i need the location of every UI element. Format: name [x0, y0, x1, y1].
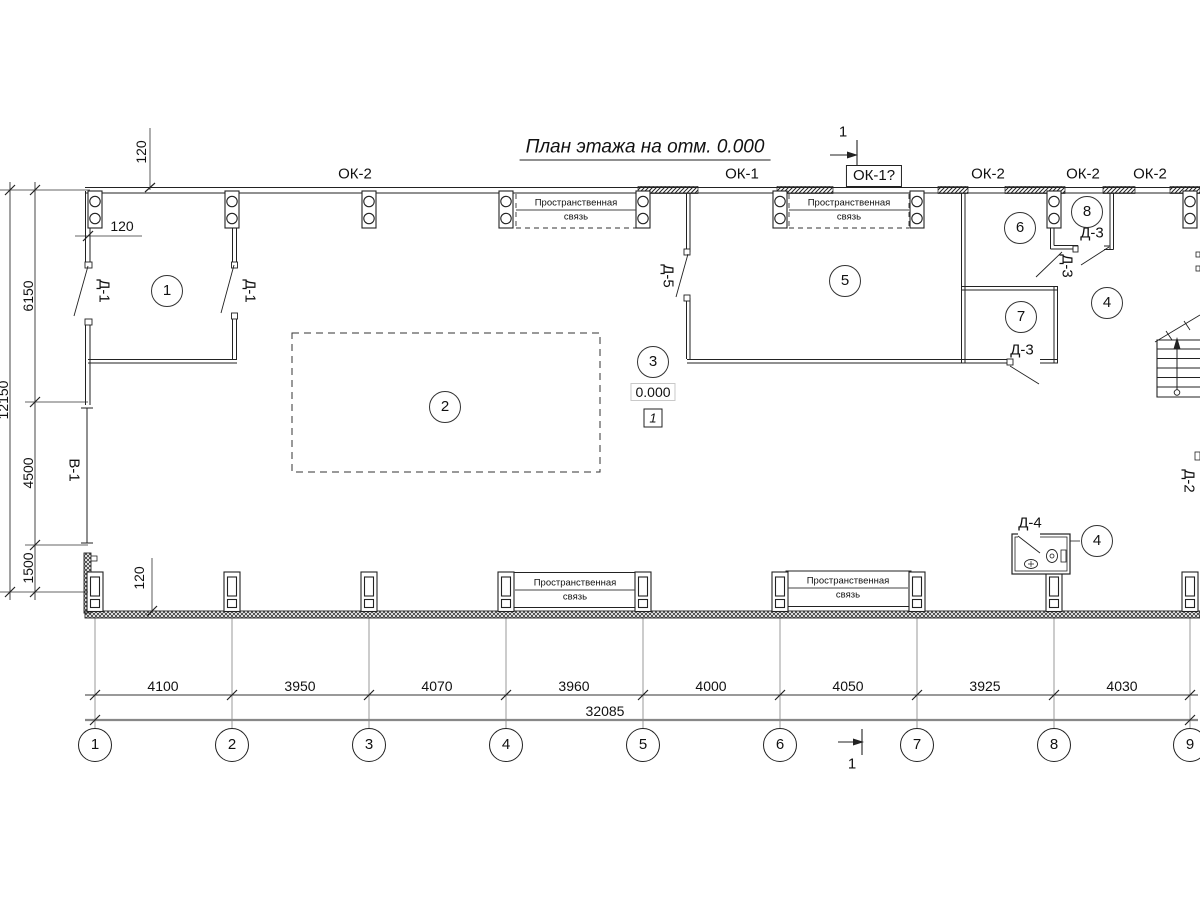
window-mark-ok2-b: ОК-2 [971, 167, 1005, 182]
door-mark-d3-low: Д-3 [1010, 343, 1034, 358]
dim-seg-2: 3950 [284, 679, 315, 693]
opening-b1-marker [81, 408, 93, 543]
stairs [1155, 315, 1200, 397]
elevation-flag: 1 [644, 409, 663, 428]
left-dimensions [0, 182, 90, 600]
room-number-6: 6 [1004, 212, 1036, 244]
dim-seg-3: 4070 [421, 679, 452, 693]
drawing-title: План этажа на отм. 0.000 [520, 138, 771, 161]
grid-axis-7: 7 [900, 728, 934, 762]
section-cut-marks [830, 140, 864, 755]
dim-seg-7: 3925 [969, 679, 1000, 693]
offset-120-top: 120 [134, 140, 148, 163]
dim-seg-8: 4030 [1106, 679, 1137, 693]
opening-mark-b1: В-1 [67, 458, 82, 481]
spatial-tie-boxes [513, 194, 911, 608]
section-cut-label-bottom: 1 [848, 757, 856, 772]
spatial-tie-bottom-right: Пространственная связь [788, 576, 908, 601]
door-mark-d1-right: Д-1 [243, 279, 258, 303]
door-mark-d1-left: Д-1 [97, 279, 112, 303]
dim-total-left: 12150 [0, 381, 10, 420]
grid-axis-2: 2 [215, 728, 249, 762]
window-mark-ok2-d: ОК-2 [1133, 167, 1167, 182]
window-mark-ok2-c: ОК-2 [1066, 167, 1100, 182]
door-mark-d2: Д-2 [1182, 469, 1197, 493]
dim-left-3: 1500 [21, 552, 35, 583]
room-number-5: 5 [829, 265, 861, 297]
spatial-tie-top-right: Пространственная связь [789, 198, 909, 223]
room-number-1: 1 [151, 275, 183, 307]
door-mark-d3-mid: Д-3 [1060, 254, 1075, 278]
dim-left-1: 6150 [21, 280, 35, 311]
floor-plan-linework [0, 0, 1200, 900]
dim-seg-4: 3960 [558, 679, 589, 693]
elevation-value: 0.000 [630, 383, 675, 401]
room-number-8: 8 [1071, 196, 1103, 228]
offset-120-left: 120 [110, 219, 133, 233]
window-mark-ok1: ОК-1 [725, 167, 759, 182]
door-mark-d5: Д-5 [661, 264, 676, 288]
grid-axis-5: 5 [626, 728, 660, 762]
room-number-2: 2 [429, 391, 461, 423]
window-mark-ok2-a: ОК-2 [338, 167, 372, 182]
grid-axis-3: 3 [352, 728, 386, 762]
door-mark-d4: Д-4 [1018, 516, 1042, 531]
section-cut-label-top: 1 [839, 125, 847, 140]
grid-axis-6: 6 [763, 728, 797, 762]
floor-plan-sheet: План этажа на отм. 0.000 1 1 ОК-2 ОК-1 О… [0, 0, 1200, 900]
window-mark-ok1-query: ОК-1? [846, 165, 902, 187]
bottom-dimensions [85, 690, 1198, 725]
dim-seg-1: 4100 [147, 679, 178, 693]
dim-total-bottom: 32085 [586, 704, 625, 718]
grid-axis-8: 8 [1037, 728, 1071, 762]
grid-axis-1: 1 [78, 728, 112, 762]
bathroom [1012, 533, 1080, 575]
spatial-tie-bottom-left: Пространственная связь [515, 578, 635, 603]
offset-120-bottom: 120 [132, 566, 146, 589]
room-number-3: 3 [637, 346, 669, 378]
grid-axis-9: 9 [1173, 728, 1200, 762]
spatial-tie-top-left: Пространственная связь [516, 198, 636, 223]
dim-left-2: 4500 [21, 457, 35, 488]
grid-lines [95, 618, 1190, 729]
room-number-7: 7 [1005, 301, 1037, 333]
dim-seg-5: 4000 [695, 679, 726, 693]
room-number-4-wc: 4 [1081, 525, 1113, 557]
grid-axis-4: 4 [489, 728, 523, 762]
room-number-4: 4 [1091, 287, 1123, 319]
dim-seg-6: 4050 [832, 679, 863, 693]
